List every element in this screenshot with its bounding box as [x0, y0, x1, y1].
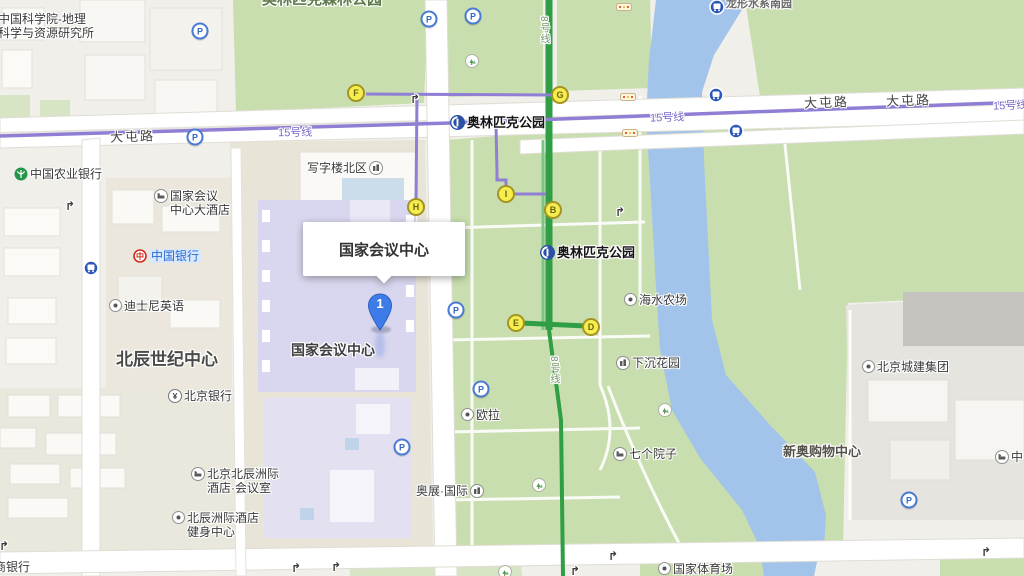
poi-beijing-chengjian-group[interactable]: 北京城建集团 — [862, 360, 951, 378]
bus-icon[interactable] — [709, 0, 725, 15]
poi-cas-geography-institute[interactable]: 中国科学院-地理科学与资源研究所 — [0, 12, 96, 40]
poi-aozhan-international[interactable]: 奥展·国际 — [414, 484, 484, 503]
arrow-icon: ↱ — [410, 92, 420, 106]
stop-icon — [616, 3, 632, 11]
metro-label-line15-east: 15号线 — [993, 96, 1024, 113]
svg-text:中: 中 — [136, 251, 144, 261]
poi-office-building-north[interactable]: 写字楼北区 — [305, 161, 383, 180]
arrow-icon: ↱ — [331, 560, 341, 574]
dot-icon — [862, 360, 875, 378]
poi-intercontinental-hotel-meeting[interactable]: 北京北辰洲际酒店·会议室 — [191, 467, 281, 495]
poi-subway-olympic-park-north[interactable]: 奥林匹克公园 — [450, 115, 547, 135]
arrow-icon: ↱ — [291, 561, 301, 575]
hotel-icon — [154, 189, 168, 208]
area-label-xinao-shopping-mall: 新奥购物中心 — [783, 441, 861, 460]
bld-icon — [616, 356, 630, 375]
subway-exit-F[interactable]: F — [347, 84, 365, 102]
dot-icon — [658, 562, 671, 576]
poi-seven-courtyards[interactable]: 七个院子 — [613, 447, 679, 466]
road-label-datunlu-west: 大屯路 — [110, 125, 156, 146]
road-label-datunlu-east2: 大屯路 — [886, 89, 932, 110]
arrow-icon: ↱ — [615, 205, 625, 219]
yen-icon: ¥ — [168, 389, 182, 408]
subway-exit-E[interactable]: E — [507, 314, 525, 332]
bank-abc-icon — [14, 167, 28, 186]
bus-icon[interactable] — [708, 87, 724, 103]
tree-icon — [498, 565, 512, 576]
dot-icon — [109, 299, 122, 317]
tree-icon — [532, 478, 546, 492]
subway-exit-I[interactable]: I — [497, 185, 515, 203]
tree-icon — [465, 54, 479, 68]
p-icon[interactable]: P — [187, 129, 204, 146]
p-icon[interactable]: P — [465, 8, 482, 25]
poi-bank-of-china[interactable]: 中中国银行 — [133, 249, 203, 268]
arrow-icon: ↱ — [981, 545, 991, 559]
poi-icbc-clipped[interactable]: 商银行 — [0, 560, 32, 574]
dot-icon — [461, 408, 474, 426]
metro-label-line15-west: 15号线 — [278, 124, 313, 141]
marker-number: 1 — [367, 296, 393, 311]
area-label-cncc-building-label: 国家会议中心 — [291, 340, 375, 360]
tree-icon — [658, 403, 672, 417]
metro-icon — [450, 115, 465, 135]
hotel-icon — [613, 447, 627, 466]
poi-subway-olympic-park-south[interactable]: 奥林匹克公园 — [540, 245, 637, 265]
poi-intercontinental-gym[interactable]: 北辰洲际酒店健身中心 — [172, 511, 261, 539]
metro-icon — [540, 245, 555, 265]
hotel-icon — [191, 467, 205, 486]
area-label-beichen-century-center: 北辰世纪中心 — [116, 345, 218, 370]
p-icon[interactable]: P — [473, 381, 490, 398]
arrow-icon: ↱ — [0, 539, 9, 553]
poi-haishui-farm[interactable]: 海水农场 — [624, 293, 689, 311]
boc-icon: 中 — [133, 249, 147, 268]
p-icon[interactable]: P — [421, 11, 438, 28]
map-canvas[interactable]: PPPPPPPP↱↱↱↱↱↱↱↱↱BDEFGHI中国科学院-地理科学与资源研究所… — [0, 0, 1024, 576]
arrow-icon: ↱ — [570, 564, 580, 576]
subway-exit-H[interactable]: H — [407, 198, 425, 216]
poi-cncc-grand-hotel[interactable]: 国家会议中心大酒店 — [154, 189, 232, 217]
subway-exit-D[interactable]: D — [582, 318, 600, 336]
stop-icon — [622, 129, 638, 137]
poi-disney-english[interactable]: 迪士尼英语 — [109, 299, 186, 317]
bld-icon — [369, 161, 383, 180]
poi-national-stadium[interactable]: 国家体育场 — [658, 562, 735, 576]
svg-text:¥: ¥ — [173, 391, 178, 401]
metro-label-line8-south: 8号线 — [546, 356, 561, 385]
subway-exit-G[interactable]: G — [551, 86, 569, 104]
poi-bank-of-beijing[interactable]: ¥北京银行 — [168, 389, 234, 408]
marker-reflection — [375, 332, 385, 358]
area-label-olympic-forest-park-clipped: 奥林匹克森林公园 — [262, 0, 382, 9]
bus-icon[interactable] — [728, 123, 744, 139]
p-icon[interactable]: P — [901, 492, 918, 509]
bld-icon — [470, 484, 484, 503]
poi-clipped-right-hotel[interactable]: 中 — [995, 450, 1024, 469]
poi-sunken-garden[interactable]: 下沉花园 — [616, 356, 682, 375]
poi-abc-bank[interactable]: 中国农业银行 — [14, 167, 104, 186]
info-window[interactable]: 国家会议中心 — [303, 222, 465, 276]
arrow-icon: ↱ — [65, 199, 75, 213]
road-label-datunlu-east1: 大屯路 — [804, 91, 850, 112]
metro-label-line8-north: 8号线 — [536, 16, 551, 45]
metro-label-line15-mid: 15号线 — [650, 108, 685, 125]
poi-oula[interactable]: 欧拉 — [461, 408, 502, 426]
area-label-longxing-water-clipped: 龙形水系南园 — [726, 0, 792, 11]
hotel-icon — [995, 450, 1009, 469]
dot-icon — [172, 511, 185, 529]
bus-icon[interactable] — [83, 260, 99, 276]
p-icon[interactable]: P — [448, 302, 465, 319]
stop-icon — [620, 93, 636, 101]
arrow-icon: ↱ — [608, 549, 618, 563]
p-icon[interactable]: P — [394, 439, 411, 456]
dot-icon — [624, 293, 637, 311]
subway-exit-B[interactable]: B — [544, 201, 562, 219]
p-icon[interactable]: P — [192, 23, 209, 40]
